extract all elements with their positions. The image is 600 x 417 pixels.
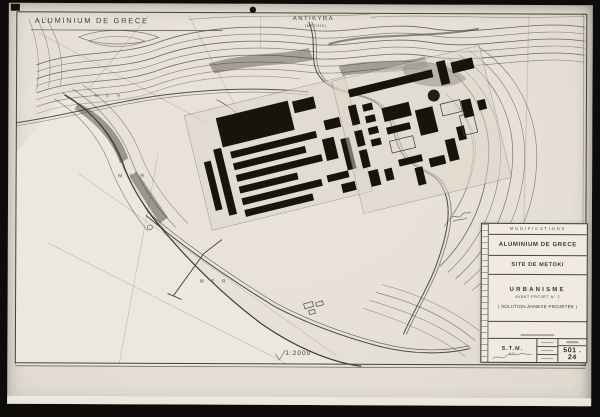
drawing-number-cell: 501 . 24 bbox=[558, 339, 586, 362]
meta-cell bbox=[537, 339, 557, 347]
punch-hole-dot bbox=[250, 7, 256, 13]
photo-print-margin bbox=[7, 396, 591, 407]
meta-cell bbox=[537, 347, 557, 355]
title-block-modifications-row: MODIFICATIONS bbox=[489, 224, 587, 235]
title-block-blank-row bbox=[488, 322, 586, 339]
drawing-number: 501 . 24 bbox=[558, 346, 586, 362]
north-place-sublabel: (METOHI) bbox=[305, 24, 327, 28]
sea-label: M E R bbox=[94, 93, 123, 99]
village-outlines bbox=[304, 299, 326, 316]
illegible-text-smudge bbox=[541, 350, 553, 352]
handwritten-marks bbox=[275, 211, 471, 361]
title-block-site: SITE DE METOKI bbox=[489, 256, 587, 275]
corner-registration-mark bbox=[11, 4, 20, 11]
meta-cells bbox=[537, 339, 558, 362]
drawing-photo: ALUMINIUM DE GRECE ANTIKYRA (METOHI) M E… bbox=[7, 3, 593, 407]
title-block-variant: ( SOLUTION ANNEXE PROJETÉE ) bbox=[498, 304, 578, 309]
illegible-text-smudge bbox=[541, 358, 553, 360]
contours-south bbox=[363, 284, 479, 357]
firm-cell: S.T.M. A.G. bbox=[488, 339, 537, 362]
drawing-corner-title: ALUMINIUM DE GRECE bbox=[35, 16, 149, 25]
sea-label: M E R bbox=[200, 279, 229, 285]
illegible-text-smudge bbox=[566, 342, 578, 344]
meta-cell bbox=[537, 355, 557, 362]
fold-crease bbox=[524, 15, 529, 221]
signature-scribble bbox=[490, 353, 534, 361]
illegible-text-smudge bbox=[541, 342, 553, 344]
title-block-company: ALUMINIUM DE GRECE bbox=[489, 235, 587, 256]
title-block-signature-row: S.T.M. A.G. 501 . 24 bbox=[488, 339, 586, 362]
illegible-text-smudge bbox=[520, 334, 554, 336]
title-block-project: AVANT PROJET N° 2 bbox=[515, 295, 560, 299]
title-block-discipline: URBANISME bbox=[510, 287, 566, 293]
scale-label: 1:2000 bbox=[285, 350, 311, 357]
north-place-label: ANTIKYRA bbox=[293, 16, 334, 22]
photo-backdrop: ALUMINIUM DE GRECE ANTIKYRA (METOHI) M E… bbox=[0, 0, 600, 417]
title-block-subject-row: URBANISME AVANT PROJET N° 2 ( SOLUTION A… bbox=[488, 274, 586, 322]
title-block: MODIFICATIONS ALUMINIUM DE GRECE SITE DE… bbox=[480, 223, 588, 363]
sea-label: M E R bbox=[118, 173, 147, 179]
